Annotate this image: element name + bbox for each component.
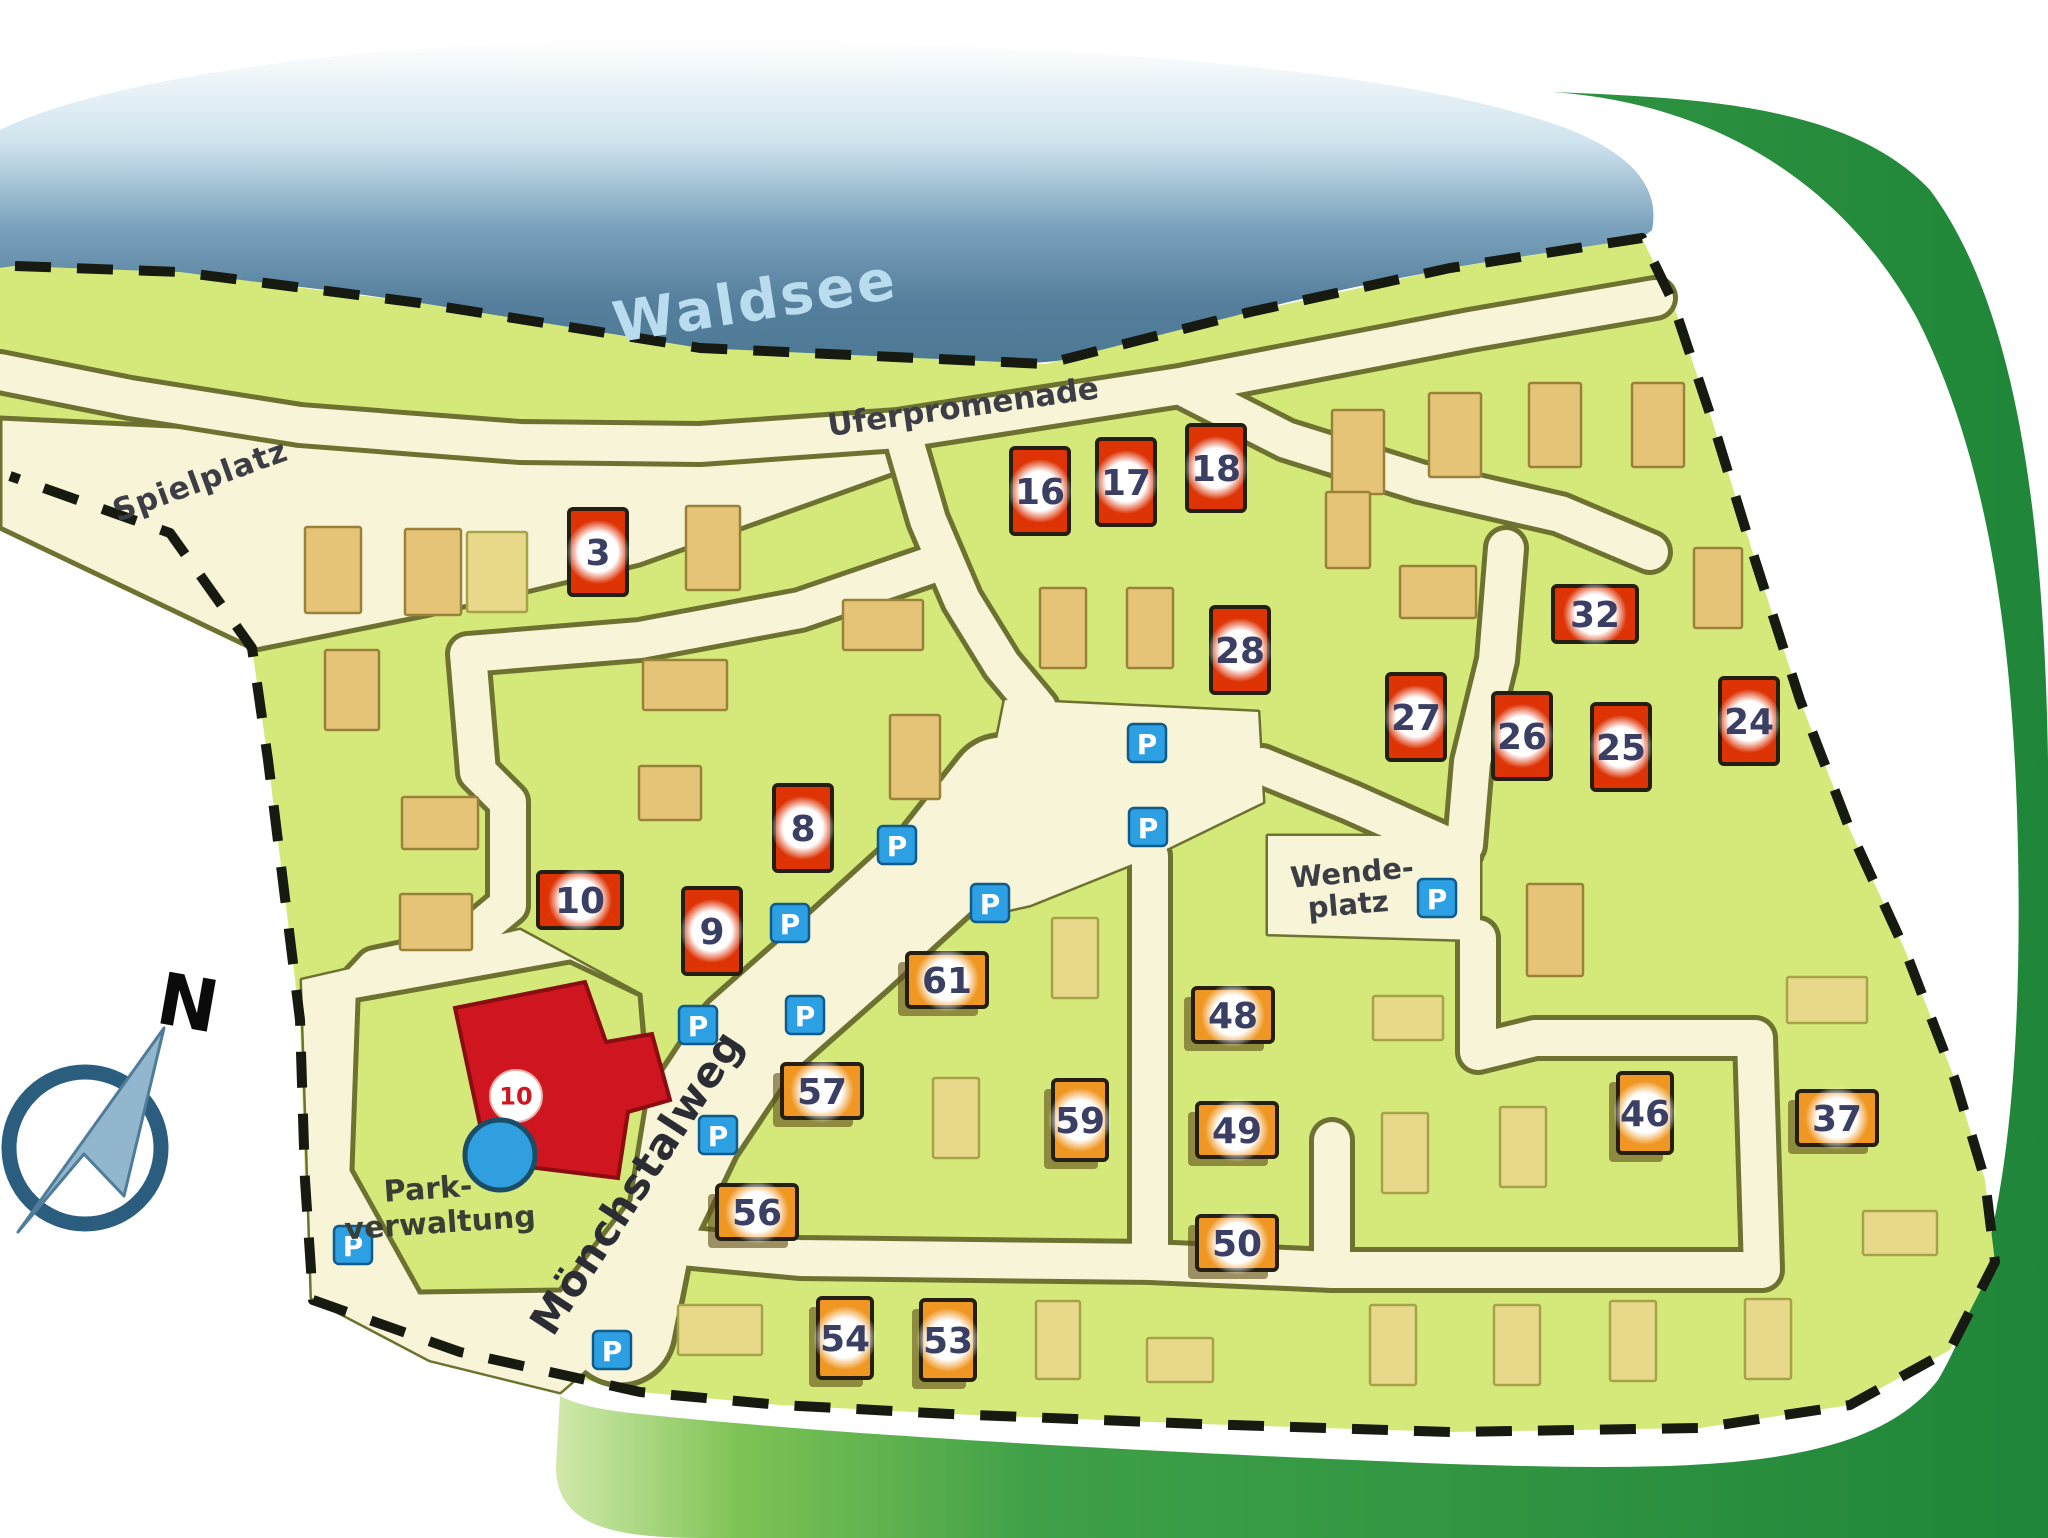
site-marker-54: 54	[809, 1298, 877, 1387]
parking-letter: P	[1138, 812, 1159, 845]
compass: N	[9, 956, 225, 1232]
parking-icon: P	[878, 826, 916, 864]
building	[467, 532, 527, 612]
marker-number: 9	[699, 912, 724, 953]
building	[1127, 588, 1173, 668]
site-marker-16: 16	[1008, 448, 1072, 534]
parking-icon: P	[786, 996, 824, 1034]
parking-icon: P	[971, 884, 1009, 922]
marker-number: 28	[1215, 631, 1265, 672]
site-marker-61: 61	[898, 948, 987, 1016]
site-marker-32: 32	[1553, 582, 1637, 646]
marker-number: 61	[922, 961, 972, 1002]
marker-number: 25	[1596, 728, 1646, 769]
marker-number: 53	[923, 1321, 973, 1362]
site-marker-8: 8	[771, 785, 835, 871]
building	[402, 797, 478, 849]
building	[686, 506, 740, 590]
site-map: 10 3161718282726252432891061575659545348…	[0, 0, 2048, 1538]
marker-number: 10	[555, 881, 605, 922]
parking-icon: P	[1418, 879, 1456, 917]
building	[1863, 1211, 1937, 1255]
building	[1370, 1305, 1416, 1385]
marker-number: 37	[1812, 1099, 1862, 1140]
site-marker-50: 50	[1188, 1211, 1277, 1279]
marker-number: 46	[1620, 1094, 1670, 1135]
building	[1745, 1299, 1791, 1379]
building	[1373, 996, 1443, 1040]
marker-number: 56	[732, 1193, 782, 1234]
site-marker-46: 46	[1609, 1073, 1677, 1162]
site-marker-56: 56	[708, 1180, 797, 1248]
site-marker-24: 24	[1717, 678, 1781, 764]
marker-number: 54	[820, 1319, 870, 1360]
marker-number: 48	[1208, 996, 1258, 1037]
site-marker-49: 49	[1188, 1098, 1277, 1166]
parking-letter: P	[795, 1000, 816, 1033]
site-marker-57: 57	[773, 1059, 862, 1127]
building	[1052, 918, 1098, 998]
site-marker-10: 10	[538, 868, 622, 932]
building	[678, 1305, 762, 1355]
turning-area-label-line2: platz	[1306, 884, 1390, 925]
site-marker-27: 27	[1384, 674, 1448, 760]
compass-north-label: N	[151, 956, 225, 1049]
parking-letter: P	[887, 830, 908, 863]
building	[1632, 383, 1684, 467]
parking-icon: P	[593, 1331, 631, 1369]
site-marker-17: 17	[1094, 439, 1158, 525]
admin-pond	[465, 1120, 535, 1190]
parking-icon: P	[1128, 724, 1166, 762]
building	[1787, 977, 1867, 1023]
marker-number: 50	[1212, 1224, 1262, 1265]
marker-number: 16	[1015, 472, 1065, 513]
building	[1332, 410, 1384, 494]
marker-number: 27	[1391, 698, 1441, 739]
building	[1500, 1107, 1546, 1187]
parking-letter: P	[1427, 883, 1448, 916]
building	[1382, 1113, 1428, 1193]
site-marker-48: 48	[1184, 983, 1273, 1051]
building	[639, 766, 701, 820]
site-marker-25: 25	[1589, 704, 1653, 790]
site-marker-26: 26	[1490, 693, 1554, 779]
marker-number: 26	[1497, 717, 1547, 758]
site-marker-3: 3	[566, 509, 630, 595]
building	[1529, 383, 1581, 467]
building	[1400, 566, 1476, 618]
building	[305, 527, 361, 613]
building	[1429, 393, 1481, 477]
building	[405, 529, 461, 615]
building	[1147, 1338, 1213, 1382]
building	[1494, 1305, 1540, 1385]
building	[890, 715, 940, 799]
building	[400, 894, 472, 950]
marker-number: 59	[1055, 1101, 1105, 1142]
site-marker-53: 53	[912, 1300, 980, 1389]
marker-number: 57	[797, 1072, 847, 1113]
building	[1610, 1301, 1656, 1381]
building	[1527, 884, 1583, 976]
marker-number: 24	[1724, 702, 1774, 743]
parking-icon: P	[1129, 808, 1167, 846]
parking-letter: P	[708, 1120, 729, 1153]
parking-letter: P	[780, 908, 801, 941]
parking-icon: P	[771, 904, 809, 942]
building	[843, 600, 923, 650]
building	[1326, 492, 1370, 568]
site-marker-37: 37	[1788, 1086, 1877, 1154]
building	[1040, 588, 1086, 668]
site-marker-28: 28	[1208, 607, 1272, 693]
marker-number: 3	[585, 533, 610, 574]
site-marker-9: 9	[680, 888, 744, 974]
holiday-park-map-canvas: 10 3161718282726252432891061575659545348…	[0, 0, 2048, 1538]
marker-number: 18	[1191, 449, 1241, 490]
parking-letter: P	[1137, 728, 1158, 761]
parking-letter: P	[980, 888, 1001, 921]
building	[325, 650, 379, 730]
marker-number: 8	[790, 809, 815, 850]
building	[1036, 1301, 1080, 1379]
marker-number: 17	[1101, 463, 1151, 504]
building	[1694, 548, 1742, 628]
parking-letter: P	[602, 1335, 623, 1368]
admin-badge-number: 10	[499, 1083, 532, 1111]
marker-number: 32	[1570, 595, 1620, 636]
building	[933, 1078, 979, 1158]
site-marker-18: 18	[1184, 425, 1248, 511]
site-marker-59: 59	[1044, 1080, 1112, 1169]
building	[643, 660, 727, 710]
marker-number: 49	[1212, 1111, 1262, 1152]
